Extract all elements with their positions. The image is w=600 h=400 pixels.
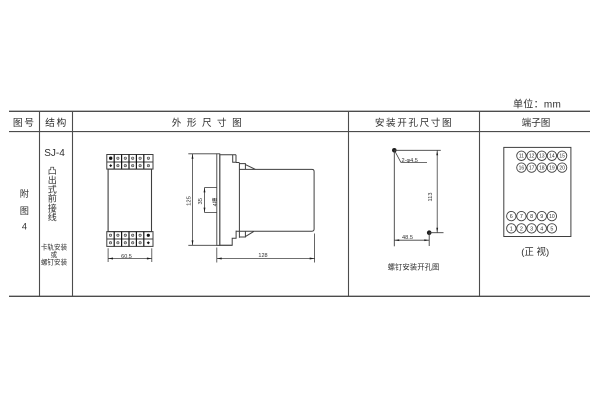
svg-text:图: 图 bbox=[20, 206, 29, 216]
svg-text:前: 前 bbox=[48, 193, 57, 204]
svg-text:20: 20 bbox=[559, 166, 565, 172]
svg-text:卡轨安装: 卡轨安装 bbox=[41, 242, 68, 251]
svg-text:单位：mm: 单位：mm bbox=[513, 98, 561, 111]
svg-text:11: 11 bbox=[519, 154, 524, 160]
svg-text:凸: 凸 bbox=[48, 166, 57, 176]
svg-text:线: 线 bbox=[48, 211, 57, 222]
svg-text:7: 7 bbox=[520, 214, 523, 220]
svg-text:14: 14 bbox=[549, 154, 555, 160]
svg-text:1: 1 bbox=[510, 226, 513, 232]
svg-text:18: 18 bbox=[539, 166, 545, 172]
svg-text:(正 视): (正 视) bbox=[521, 246, 549, 258]
svg-text:6: 6 bbox=[510, 214, 513, 220]
svg-text:8: 8 bbox=[530, 214, 533, 220]
svg-text:2: 2 bbox=[520, 226, 523, 232]
svg-text:图号: 图号 bbox=[13, 117, 36, 129]
svg-text:或: 或 bbox=[51, 250, 58, 259]
svg-text:结构: 结构 bbox=[45, 116, 68, 129]
svg-text:128: 128 bbox=[258, 253, 267, 259]
svg-text:48.5: 48.5 bbox=[402, 235, 413, 241]
svg-text:式: 式 bbox=[48, 183, 57, 194]
svg-text:12: 12 bbox=[529, 154, 535, 160]
svg-text:15: 15 bbox=[559, 154, 565, 160]
svg-text:35: 35 bbox=[198, 198, 204, 204]
svg-text:安装开孔尺寸图: 安装开孔尺寸图 bbox=[375, 117, 453, 129]
svg-text:SJ-4: SJ-4 bbox=[44, 148, 65, 159]
svg-text:3: 3 bbox=[530, 226, 533, 232]
svg-text:16: 16 bbox=[519, 166, 525, 172]
svg-text:螺钉安装: 螺钉安装 bbox=[41, 258, 68, 267]
svg-text:17: 17 bbox=[529, 166, 535, 172]
svg-text:4: 4 bbox=[22, 222, 27, 232]
svg-text:外形尺寸图: 外形尺寸图 bbox=[172, 117, 247, 129]
svg-text:附: 附 bbox=[20, 188, 29, 199]
svg-text:13: 13 bbox=[539, 154, 545, 160]
svg-text:螺钉安装开孔图: 螺钉安装开孔图 bbox=[388, 262, 440, 271]
svg-text:端子图: 端子图 bbox=[522, 117, 551, 129]
svg-text:113: 113 bbox=[428, 193, 434, 202]
svg-text:2-φ4.5: 2-φ4.5 bbox=[402, 158, 418, 164]
svg-text:60.5: 60.5 bbox=[121, 254, 132, 260]
svg-text:19: 19 bbox=[549, 166, 555, 172]
svg-text:4: 4 bbox=[540, 226, 543, 232]
svg-text:125: 125 bbox=[187, 196, 193, 206]
svg-text:5: 5 bbox=[550, 226, 553, 232]
svg-text:9: 9 bbox=[540, 214, 543, 220]
svg-text:10: 10 bbox=[549, 214, 555, 220]
